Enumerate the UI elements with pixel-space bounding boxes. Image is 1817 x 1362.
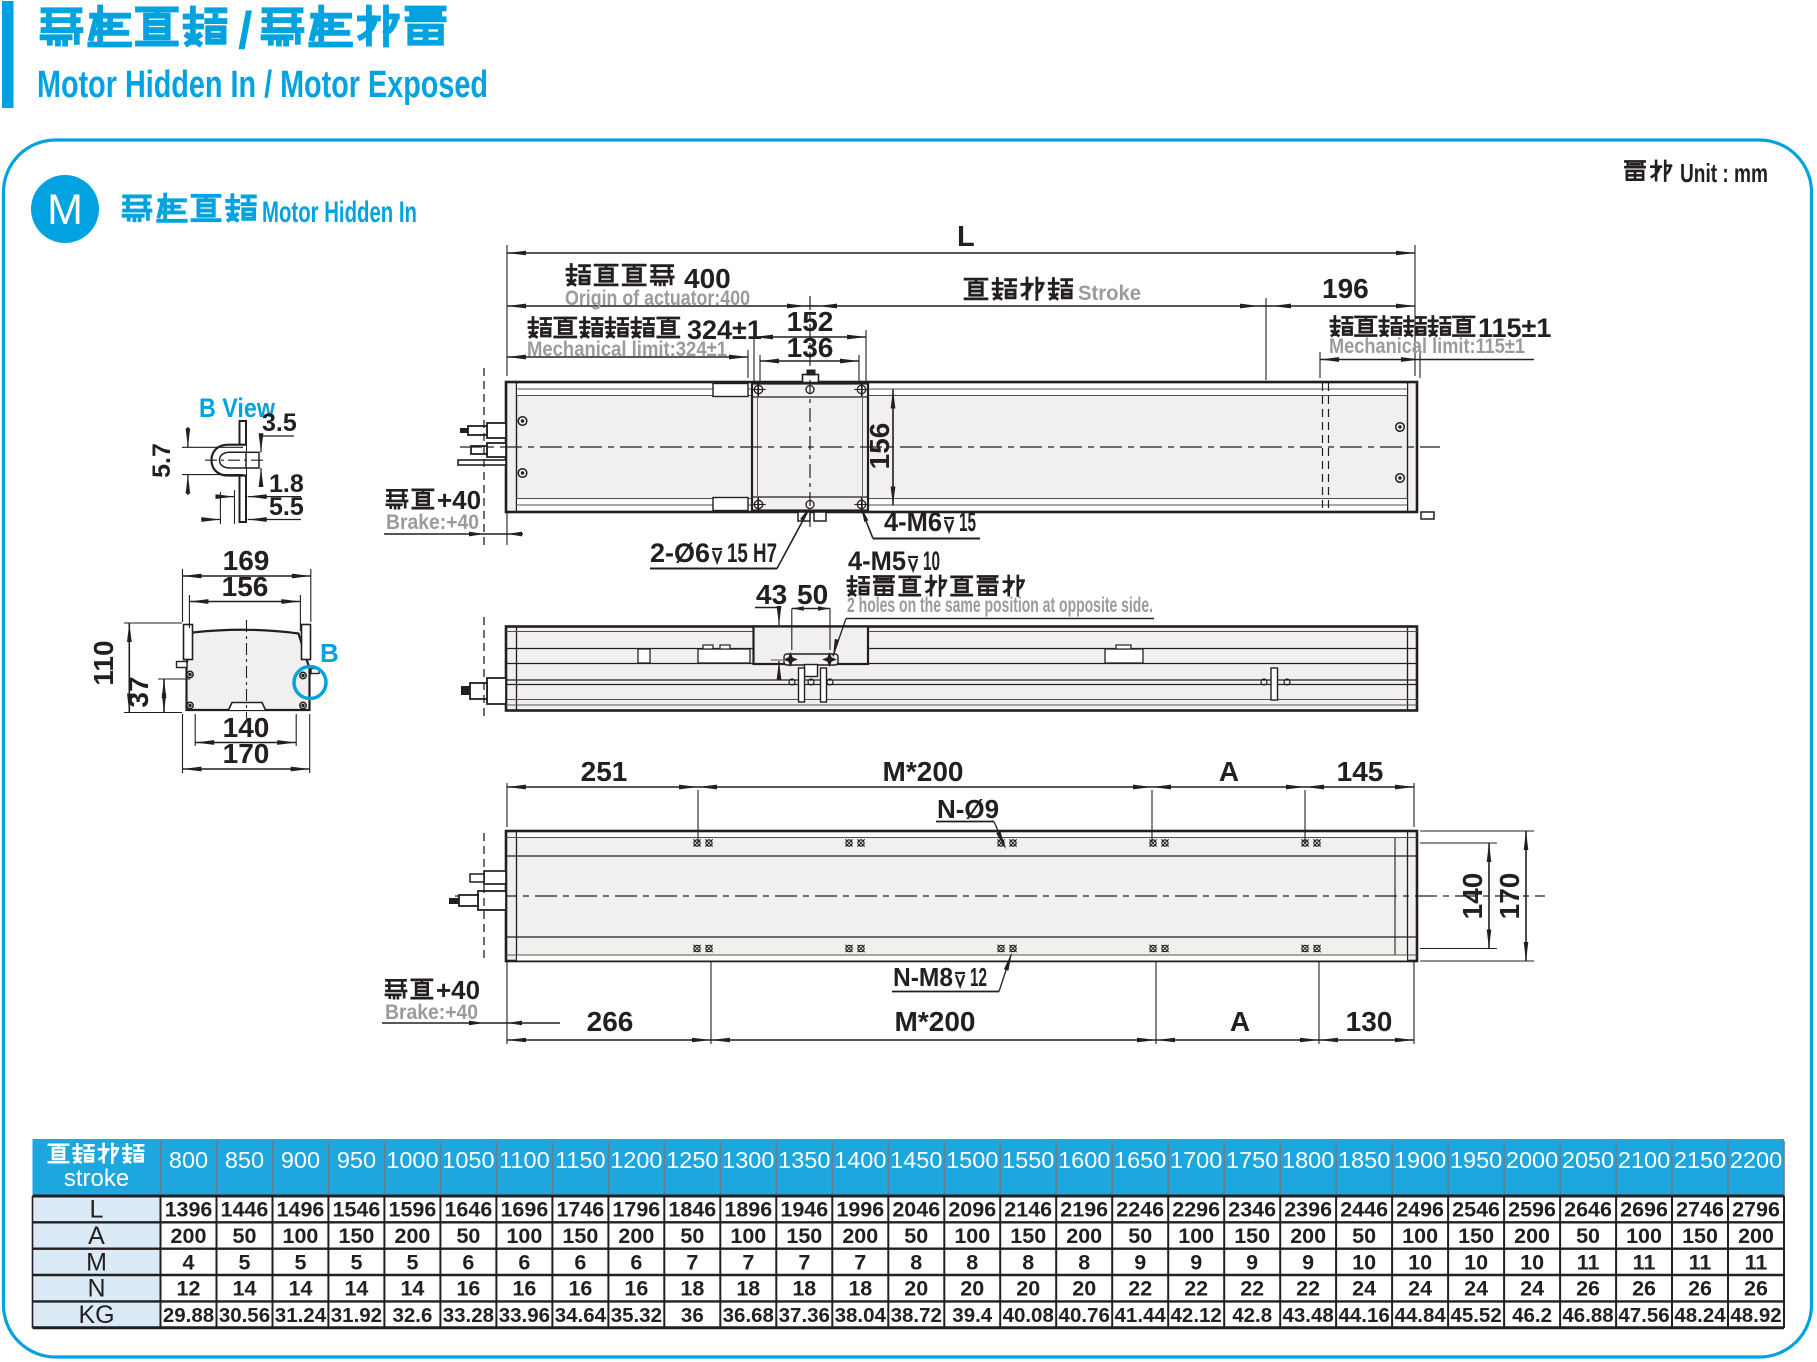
svg-text:2796: 2796 <box>1732 1198 1780 1222</box>
svg-text:1950: 1950 <box>1450 1147 1502 1173</box>
svg-text:20: 20 <box>1016 1277 1040 1301</box>
svg-text:37: 37 <box>123 676 154 707</box>
svg-text:5.7: 5.7 <box>148 443 176 478</box>
svg-text:900: 900 <box>281 1147 320 1173</box>
svg-text:200: 200 <box>394 1224 430 1248</box>
svg-text:38.72: 38.72 <box>891 1304 942 1327</box>
svg-text:156: 156 <box>222 571 269 602</box>
svg-text:18: 18 <box>736 1277 760 1301</box>
svg-text:2496: 2496 <box>1396 1198 1444 1222</box>
svg-text:7: 7 <box>798 1250 810 1274</box>
svg-text:35.32: 35.32 <box>611 1304 662 1327</box>
svg-text:2-Ø6: 2-Ø6 <box>650 538 710 568</box>
svg-text:Stroke: Stroke <box>1078 282 1141 305</box>
svg-text:150: 150 <box>1682 1224 1718 1248</box>
svg-text:B: B <box>320 638 339 668</box>
svg-text:2200: 2200 <box>1730 1147 1782 1173</box>
svg-text:150: 150 <box>1010 1224 1046 1248</box>
svg-text:46.2: 46.2 <box>1512 1304 1552 1327</box>
svg-text:2150: 2150 <box>1674 1147 1726 1173</box>
svg-text:43: 43 <box>756 579 787 610</box>
svg-text:1400: 1400 <box>834 1147 886 1173</box>
svg-text:1900: 1900 <box>1394 1147 1446 1173</box>
svg-text:100: 100 <box>730 1224 766 1248</box>
svg-text:150: 150 <box>1234 1224 1270 1248</box>
svg-text:48.24: 48.24 <box>1674 1304 1726 1327</box>
svg-text:1746: 1746 <box>556 1198 604 1222</box>
svg-text:2596: 2596 <box>1508 1198 1556 1222</box>
svg-text:32.6: 32.6 <box>392 1304 432 1327</box>
svg-text:1200: 1200 <box>610 1147 662 1173</box>
svg-text:2046: 2046 <box>892 1198 940 1222</box>
svg-text:200: 200 <box>618 1224 654 1248</box>
svg-text:22: 22 <box>1240 1277 1264 1301</box>
svg-text:4: 4 <box>183 1250 195 1274</box>
svg-text:31.92: 31.92 <box>331 1304 382 1327</box>
svg-text:110: 110 <box>88 640 119 685</box>
svg-text:10: 10 <box>1464 1250 1488 1274</box>
svg-text:38.04: 38.04 <box>835 1304 887 1327</box>
svg-text:50: 50 <box>680 1224 704 1248</box>
svg-text:22: 22 <box>1184 1277 1208 1301</box>
svg-text:46.88: 46.88 <box>1562 1304 1613 1327</box>
svg-text:A: A <box>1219 756 1239 787</box>
svg-text:130: 130 <box>1346 1006 1393 1037</box>
svg-text:1300: 1300 <box>722 1147 774 1173</box>
svg-text:1600: 1600 <box>1058 1147 1110 1173</box>
svg-text:9: 9 <box>1302 1250 1314 1274</box>
svg-text:1996: 1996 <box>836 1198 884 1222</box>
svg-text:20: 20 <box>904 1277 928 1301</box>
svg-text:3.5: 3.5 <box>262 409 297 437</box>
svg-text:8: 8 <box>1078 1250 1090 1274</box>
svg-text:12: 12 <box>177 1277 201 1301</box>
svg-text:1800: 1800 <box>1282 1147 1334 1173</box>
svg-text:1700: 1700 <box>1170 1147 1222 1173</box>
svg-text:1896: 1896 <box>724 1198 772 1222</box>
svg-text:24: 24 <box>1408 1277 1432 1301</box>
svg-text:2146: 2146 <box>1004 1198 1052 1222</box>
svg-text:2100: 2100 <box>1618 1147 1670 1173</box>
svg-text:29.88: 29.88 <box>163 1304 214 1327</box>
svg-text:36: 36 <box>681 1304 704 1327</box>
svg-text:11: 11 <box>1577 1250 1600 1274</box>
svg-text:44.16: 44.16 <box>1338 1304 1389 1327</box>
svg-text:2246: 2246 <box>1116 1198 1164 1222</box>
svg-text:100: 100 <box>506 1224 542 1248</box>
svg-text:24: 24 <box>1464 1277 1488 1301</box>
svg-text:39.4: 39.4 <box>952 1304 992 1327</box>
svg-text:50: 50 <box>233 1224 257 1248</box>
svg-text:M: M <box>86 1248 107 1276</box>
svg-text:1396: 1396 <box>165 1198 213 1222</box>
svg-text:5.5: 5.5 <box>269 493 304 521</box>
svg-text:L: L <box>90 1196 104 1224</box>
svg-text:48.92: 48.92 <box>1730 1304 1781 1327</box>
svg-text:5: 5 <box>350 1250 362 1274</box>
svg-text:100: 100 <box>954 1224 990 1248</box>
svg-text:14: 14 <box>288 1277 312 1301</box>
svg-text:1350: 1350 <box>778 1147 830 1173</box>
svg-text:1596: 1596 <box>389 1198 437 1222</box>
svg-text:16: 16 <box>456 1277 480 1301</box>
svg-text:Origin of actuator:400: Origin of actuator:400 <box>565 287 750 310</box>
svg-text:5: 5 <box>294 1250 306 1274</box>
svg-text:L: L <box>957 221 975 253</box>
svg-text:15 H7: 15 H7 <box>727 538 777 568</box>
svg-text:1696: 1696 <box>500 1198 548 1222</box>
svg-text:1250: 1250 <box>666 1147 718 1173</box>
svg-text:7: 7 <box>854 1250 866 1274</box>
svg-text:42.12: 42.12 <box>1171 1304 1222 1327</box>
svg-text:100: 100 <box>1626 1224 1662 1248</box>
svg-text:37.36: 37.36 <box>779 1304 830 1327</box>
svg-text:12: 12 <box>970 962 987 992</box>
svg-text:47.56: 47.56 <box>1618 1304 1669 1327</box>
svg-text:24: 24 <box>1352 1277 1376 1301</box>
svg-text:196: 196 <box>1322 273 1369 304</box>
svg-text:Mechanical limit:324±1: Mechanical limit:324±1 <box>527 338 727 361</box>
svg-text:100: 100 <box>1402 1224 1438 1248</box>
svg-text:M*200: M*200 <box>895 1006 976 1037</box>
svg-text:26: 26 <box>1632 1277 1656 1301</box>
svg-text:A: A <box>88 1222 105 1250</box>
svg-text:1500: 1500 <box>946 1147 998 1173</box>
svg-text:Brake:+40: Brake:+40 <box>386 511 479 534</box>
svg-text:1050: 1050 <box>442 1147 494 1173</box>
svg-text:6: 6 <box>518 1250 530 1274</box>
svg-text:33.96: 33.96 <box>499 1304 550 1327</box>
svg-text:8: 8 <box>966 1250 978 1274</box>
svg-text:50: 50 <box>797 579 828 610</box>
svg-text:50: 50 <box>1576 1224 1600 1248</box>
svg-text:800: 800 <box>169 1147 208 1173</box>
svg-text:266: 266 <box>587 1006 634 1037</box>
svg-text:50: 50 <box>1352 1224 1376 1248</box>
svg-text:50: 50 <box>456 1224 480 1248</box>
svg-text:Unit : mm: Unit : mm <box>1680 158 1768 188</box>
svg-text:26: 26 <box>1688 1277 1712 1301</box>
svg-text:16: 16 <box>512 1277 536 1301</box>
svg-text:36.68: 36.68 <box>723 1304 774 1327</box>
svg-text:9: 9 <box>1190 1250 1202 1274</box>
svg-text:11: 11 <box>1689 1250 1712 1274</box>
svg-text:2050: 2050 <box>1562 1147 1614 1173</box>
svg-text:6: 6 <box>462 1250 474 1274</box>
svg-text:9: 9 <box>1134 1250 1146 1274</box>
svg-text:1450: 1450 <box>890 1147 942 1173</box>
svg-text:Brake:+40: Brake:+40 <box>385 1001 478 1024</box>
svg-text:31.24: 31.24 <box>275 1304 327 1327</box>
svg-text:6: 6 <box>574 1250 586 1274</box>
svg-text:170: 170 <box>1494 873 1525 920</box>
svg-text:8: 8 <box>910 1250 922 1274</box>
svg-text:44.84: 44.84 <box>1394 1304 1446 1327</box>
svg-text:KG: KG <box>78 1301 114 1329</box>
svg-text:N: N <box>87 1275 105 1303</box>
svg-text:156: 156 <box>864 423 895 470</box>
svg-text:40.76: 40.76 <box>1059 1304 1110 1327</box>
svg-text:200: 200 <box>1738 1224 1774 1248</box>
svg-text:2546: 2546 <box>1452 1198 1500 1222</box>
svg-text:15: 15 <box>959 507 976 537</box>
svg-text:22: 22 <box>1128 1277 1152 1301</box>
svg-text:2000: 2000 <box>1506 1147 1558 1173</box>
svg-text:26: 26 <box>1576 1277 1600 1301</box>
svg-text:30.56: 30.56 <box>219 1304 270 1327</box>
svg-text:18: 18 <box>792 1277 816 1301</box>
svg-text:20: 20 <box>960 1277 984 1301</box>
svg-text:Motor Hidden In / Motor Expose: Motor Hidden In / Motor Exposed <box>37 64 488 106</box>
svg-text:100: 100 <box>1178 1224 1214 1248</box>
svg-text:14: 14 <box>344 1277 368 1301</box>
svg-text:7: 7 <box>686 1250 698 1274</box>
svg-text:Mechanical limit:115±1: Mechanical limit:115±1 <box>1329 335 1525 358</box>
svg-text:200: 200 <box>171 1224 207 1248</box>
svg-text:4-M6: 4-M6 <box>884 507 942 537</box>
svg-text:145: 145 <box>1337 756 1384 787</box>
svg-text:2746: 2746 <box>1676 1198 1724 1222</box>
svg-text:11: 11 <box>1745 1250 1768 1274</box>
svg-text:24: 24 <box>1520 1277 1544 1301</box>
svg-text:1550: 1550 <box>1002 1147 1054 1173</box>
svg-text:26: 26 <box>1744 1277 1768 1301</box>
svg-text:M: M <box>47 186 83 234</box>
svg-text:200: 200 <box>1066 1224 1102 1248</box>
svg-text:10: 10 <box>923 546 940 576</box>
svg-text:2 holes on the same position a: 2 holes on the same position at opposite… <box>847 594 1153 617</box>
svg-text:14: 14 <box>400 1277 424 1301</box>
svg-text:34.64: 34.64 <box>555 1304 607 1327</box>
svg-text:2696: 2696 <box>1620 1198 1668 1222</box>
svg-text:50: 50 <box>904 1224 928 1248</box>
svg-text:stroke: stroke <box>64 1165 129 1192</box>
svg-text:150: 150 <box>339 1224 375 1248</box>
svg-text:11: 11 <box>1633 1250 1656 1274</box>
svg-text:150: 150 <box>562 1224 598 1248</box>
svg-text:200: 200 <box>1514 1224 1550 1248</box>
svg-text:16: 16 <box>568 1277 592 1301</box>
svg-text:/: / <box>238 2 252 60</box>
svg-text:22: 22 <box>1296 1277 1320 1301</box>
svg-text:1100: 1100 <box>499 1147 550 1173</box>
svg-text:5: 5 <box>406 1250 418 1274</box>
svg-text:Motor Hidden In: Motor Hidden In <box>262 196 417 229</box>
svg-text:10: 10 <box>1408 1250 1432 1274</box>
svg-text:M*200: M*200 <box>883 756 964 787</box>
svg-text:16: 16 <box>624 1277 648 1301</box>
svg-text:33.28: 33.28 <box>443 1304 494 1327</box>
svg-text:850: 850 <box>225 1147 264 1173</box>
svg-text:2096: 2096 <box>948 1198 996 1222</box>
svg-text:2396: 2396 <box>1284 1198 1332 1222</box>
svg-text:1446: 1446 <box>221 1198 269 1222</box>
svg-text:100: 100 <box>283 1224 319 1248</box>
svg-text:1850: 1850 <box>1338 1147 1390 1173</box>
svg-text:1750: 1750 <box>1226 1147 1278 1173</box>
svg-text:18: 18 <box>848 1277 872 1301</box>
svg-text:45.52: 45.52 <box>1450 1304 1501 1327</box>
svg-text:150: 150 <box>1458 1224 1494 1248</box>
svg-text:N-Ø9: N-Ø9 <box>937 794 999 824</box>
svg-text:1846: 1846 <box>668 1198 716 1222</box>
svg-text:2446: 2446 <box>1340 1198 1388 1222</box>
svg-text:40.08: 40.08 <box>1003 1304 1054 1327</box>
svg-text:2346: 2346 <box>1228 1198 1276 1222</box>
svg-text:1796: 1796 <box>612 1198 660 1222</box>
svg-text:20: 20 <box>1072 1277 1096 1301</box>
svg-text:4-M5: 4-M5 <box>848 546 906 576</box>
svg-text:9: 9 <box>1246 1250 1258 1274</box>
svg-text:N-M8: N-M8 <box>893 962 953 992</box>
svg-text:14: 14 <box>233 1277 257 1301</box>
svg-text:1150: 1150 <box>555 1147 606 1173</box>
svg-text:6: 6 <box>630 1250 642 1274</box>
svg-text:136: 136 <box>787 332 834 363</box>
svg-text:1496: 1496 <box>277 1198 325 1222</box>
svg-text:2646: 2646 <box>1564 1198 1612 1222</box>
svg-text:2196: 2196 <box>1060 1198 1108 1222</box>
svg-text:42.8: 42.8 <box>1232 1304 1272 1327</box>
svg-text:5: 5 <box>238 1250 250 1274</box>
svg-text:50: 50 <box>1128 1224 1152 1248</box>
svg-text:200: 200 <box>1290 1224 1326 1248</box>
svg-text:18: 18 <box>680 1277 704 1301</box>
svg-text:1546: 1546 <box>333 1198 381 1222</box>
svg-text:A: A <box>1230 1006 1250 1037</box>
svg-text:8: 8 <box>1022 1250 1034 1274</box>
svg-text:150: 150 <box>786 1224 822 1248</box>
svg-text:41.44: 41.44 <box>1115 1304 1167 1327</box>
svg-text:200: 200 <box>842 1224 878 1248</box>
svg-text:1646: 1646 <box>444 1198 492 1222</box>
svg-text:7: 7 <box>742 1250 754 1274</box>
svg-text:43.48: 43.48 <box>1282 1304 1333 1327</box>
svg-text:1946: 1946 <box>780 1198 828 1222</box>
svg-text:1000: 1000 <box>386 1147 438 1173</box>
svg-text:140: 140 <box>1457 873 1488 920</box>
svg-text:10: 10 <box>1520 1250 1544 1274</box>
svg-text:1650: 1650 <box>1114 1147 1166 1173</box>
svg-text:2296: 2296 <box>1172 1198 1220 1222</box>
svg-text:251: 251 <box>581 756 628 787</box>
svg-text:170: 170 <box>223 738 270 769</box>
svg-text:10: 10 <box>1352 1250 1376 1274</box>
svg-text:950: 950 <box>337 1147 376 1173</box>
